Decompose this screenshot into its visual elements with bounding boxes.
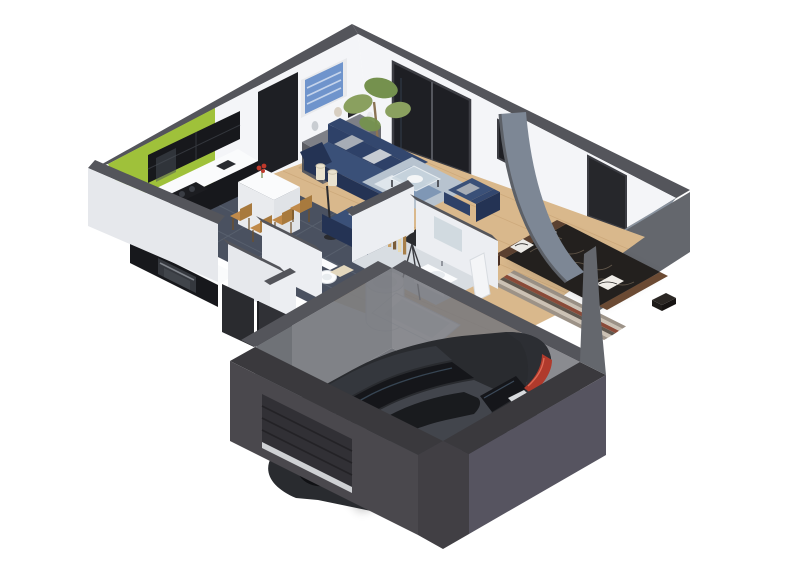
bust-decor [334,107,342,117]
vase [312,121,319,131]
floor-plan-3d-render [0,0,800,566]
bedroom-bench [652,293,676,311]
corner-pillar [418,441,469,549]
floor-plan-canvas [0,0,800,566]
